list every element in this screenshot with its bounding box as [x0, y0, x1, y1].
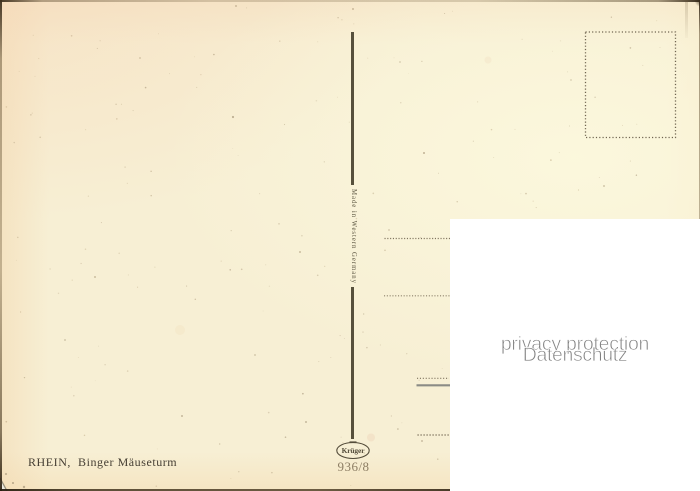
- svg-text:Krüger: Krüger: [342, 446, 366, 455]
